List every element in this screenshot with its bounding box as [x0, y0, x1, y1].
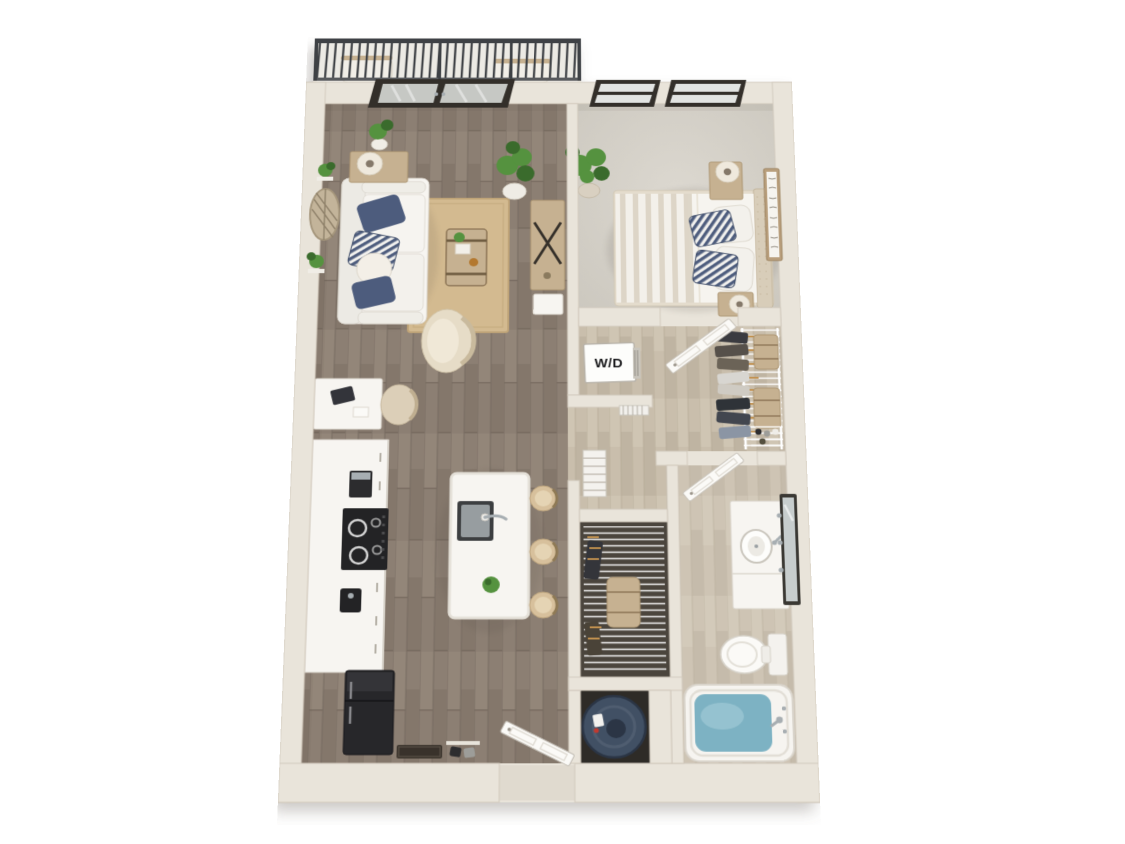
trunk-coffee-table	[446, 229, 487, 286]
floor-plan-svg: W/D	[277, 37, 821, 825]
floor-plan-3d: W/D	[277, 37, 821, 825]
cooktop	[341, 508, 389, 570]
desk-chair	[380, 385, 417, 425]
louver-panel	[583, 450, 606, 496]
floor-grille	[619, 406, 648, 416]
laundry-closet: W/D	[584, 343, 641, 383]
interior-wall-linen-bottom	[569, 677, 683, 690]
linen-closet	[583, 526, 666, 672]
utility-closet	[582, 696, 646, 757]
navy-striped-pillow	[692, 249, 739, 288]
interior-wall-spine-lower	[568, 480, 580, 690]
island-plant	[482, 576, 500, 593]
storage-case	[753, 388, 781, 428]
striped-duvet-foot	[615, 194, 692, 303]
bed	[613, 189, 773, 308]
balcony	[313, 38, 581, 82]
entry-threshold	[499, 765, 575, 800]
coffee-maker	[349, 471, 373, 498]
bar-stool	[530, 486, 557, 511]
walk-in-closet	[714, 328, 784, 449]
wd-label: W/D	[594, 355, 623, 370]
interior-wall-spine-upper	[567, 104, 579, 395]
kitchen-island	[449, 473, 529, 618]
bathtub	[684, 685, 795, 762]
interior-wall-utility-right	[649, 690, 672, 763]
bar-stool	[530, 539, 557, 565]
bar-stool	[530, 592, 557, 618]
media-console	[530, 200, 564, 314]
interior-wall-linen-top	[580, 509, 668, 522]
white-cabinet	[533, 294, 563, 314]
storage-box	[607, 577, 640, 627]
interior-wall-bedroom-left	[579, 308, 661, 327]
nightstand	[709, 161, 743, 199]
interior-wall-bedroom-right	[738, 308, 781, 327]
interior-wall-bath-left	[656, 451, 688, 465]
bedroom-window	[664, 80, 747, 107]
wall-art	[764, 169, 783, 261]
storage-case	[753, 335, 778, 369]
console-table	[349, 152, 408, 183]
shoe-rack	[751, 425, 782, 448]
exterior-wall-bottom	[575, 763, 820, 802]
small-appliance	[340, 588, 362, 612]
interior-wall-bath-right	[757, 451, 786, 465]
exterior-wall-bottom	[278, 763, 500, 802]
sofa	[337, 178, 429, 323]
refrigerator	[343, 670, 394, 754]
page-background: W/D	[0, 0, 1125, 844]
toilet	[720, 634, 788, 675]
french-doors	[368, 79, 515, 107]
hall-threshold	[568, 407, 580, 480]
desk	[313, 379, 382, 430]
bedroom-window	[589, 80, 661, 107]
